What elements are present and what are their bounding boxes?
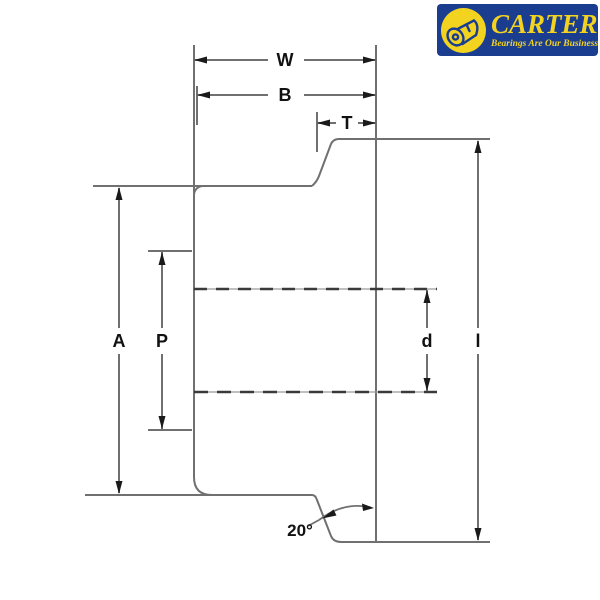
part-outline bbox=[85, 45, 490, 542]
dimension-label-b: B bbox=[279, 85, 292, 105]
dimension-label-w: W bbox=[277, 50, 294, 70]
logo-text-block: CARTER Bearings Are Our Business bbox=[491, 11, 598, 50]
engineering-drawing-page: W B T A P d l 20° bbox=[0, 0, 600, 600]
cross-section-diagram: W B T A P d l 20° bbox=[0, 0, 600, 600]
extension-lines bbox=[148, 86, 317, 430]
dimension-arrows bbox=[116, 57, 482, 542]
dimension-label-a: A bbox=[113, 331, 126, 351]
dimension-label-d: d bbox=[422, 331, 433, 351]
dimension-label-angle: 20° bbox=[287, 521, 313, 540]
dimension-label-p: P bbox=[156, 331, 168, 351]
logo-brand-text: CARTER bbox=[491, 11, 598, 38]
bearing-icon bbox=[441, 8, 486, 53]
carter-logo: CARTER Bearings Are Our Business bbox=[437, 4, 598, 56]
bore-lines bbox=[194, 289, 437, 392]
dimension-lines bbox=[119, 60, 478, 540]
dimension-label-t: T bbox=[342, 113, 353, 133]
logo-tagline: Bearings Are Our Business bbox=[491, 40, 598, 50]
dimension-label-l: l bbox=[475, 331, 480, 351]
